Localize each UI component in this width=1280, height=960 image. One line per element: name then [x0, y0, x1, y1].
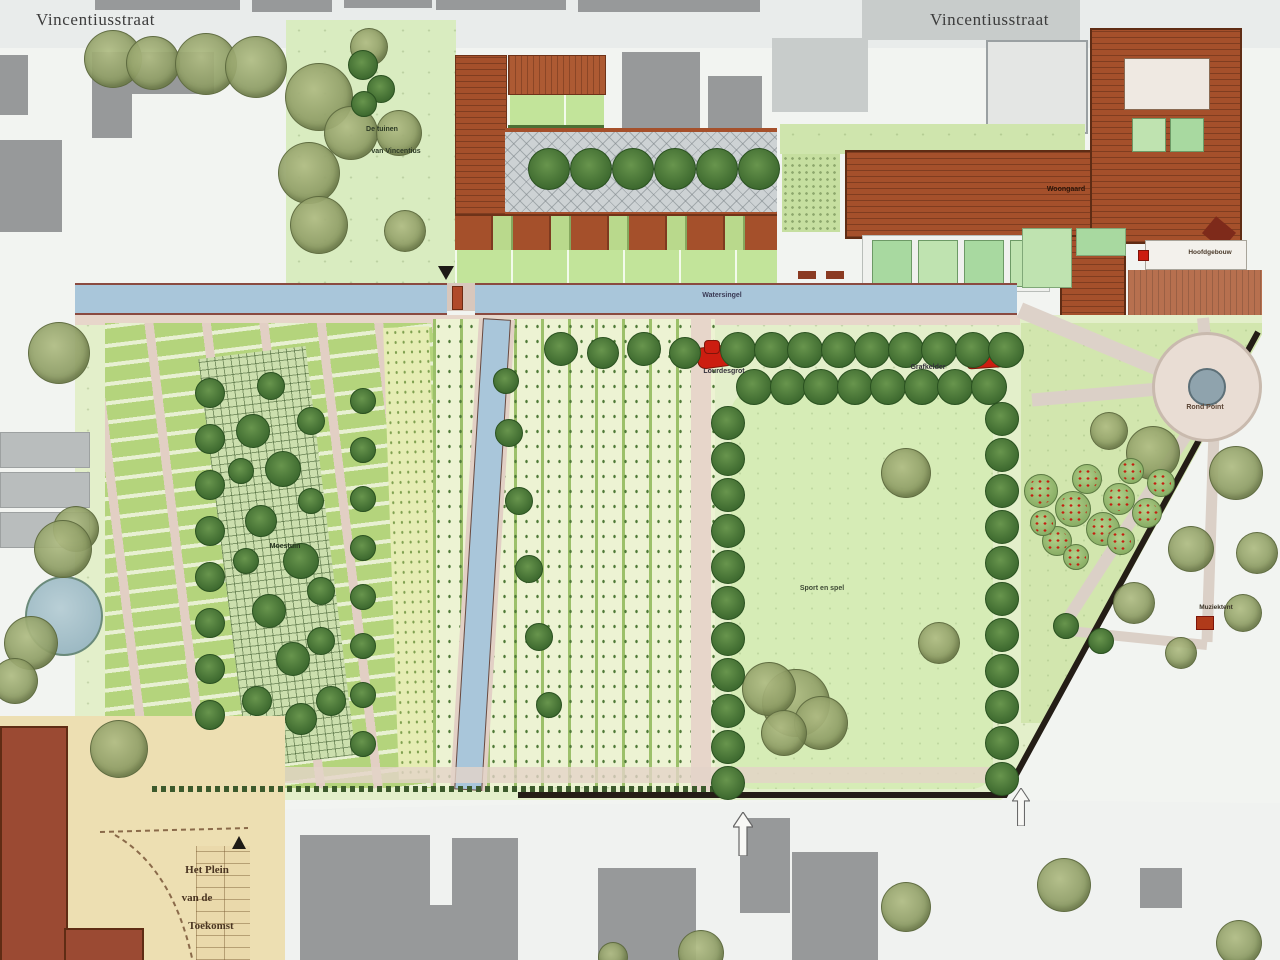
- main-building-label: Hoofdgebouw: [1188, 249, 1231, 256]
- lourdes-grotto-label: Lourdesgrot: [703, 368, 744, 375]
- burial-vault-marker: [965, 344, 1014, 369]
- up-arrow-icon: [1012, 788, 1030, 826]
- site-plan: Vincentiusstraat Vincentiusstraat Waters…: [0, 0, 1280, 960]
- north-arrow: [232, 836, 246, 849]
- music-pavilion-label: Muziektent: [1199, 604, 1233, 611]
- future-square-label-2: van de: [182, 892, 213, 904]
- allotment-label: Moestuin: [270, 543, 301, 550]
- round-plaza-label: Rond Point: [1186, 404, 1223, 411]
- future-square-label-1: Het Plein: [185, 864, 229, 876]
- burial-vault-label: Grafkelder: [910, 364, 945, 371]
- boundary-linework: [0, 0, 1280, 960]
- street-label-right: Vincentiusstraat: [930, 10, 1049, 30]
- garden-note-line1: De tuinen: [366, 126, 398, 133]
- water-canal-label: Watersingel: [702, 292, 741, 299]
- care-building-label: Woongaard: [1047, 186, 1085, 193]
- entrance-arrow: [438, 266, 454, 280]
- sports-lawn-label: Sport en spel: [800, 585, 844, 592]
- lourdes-grotto-marker-2: [704, 340, 720, 354]
- round-plaza-centre: [1188, 368, 1226, 406]
- garden-note-line2: van Vincentius: [371, 148, 420, 155]
- music-pavilion-marker: [1196, 616, 1214, 630]
- future-square-label-3: Toekomst: [188, 920, 233, 932]
- up-arrow-icon: [733, 812, 753, 856]
- street-label-left: Vincentiusstraat: [36, 10, 155, 30]
